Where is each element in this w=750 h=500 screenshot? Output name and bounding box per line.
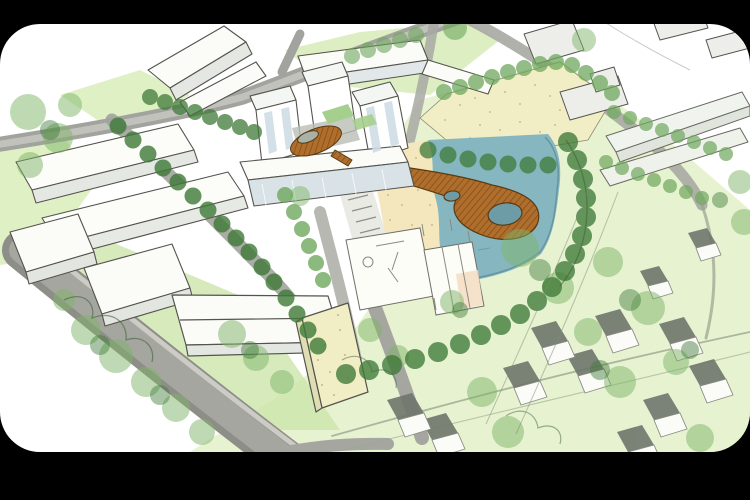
court-a xyxy=(346,228,434,310)
masterplan-illustration xyxy=(0,0,750,500)
